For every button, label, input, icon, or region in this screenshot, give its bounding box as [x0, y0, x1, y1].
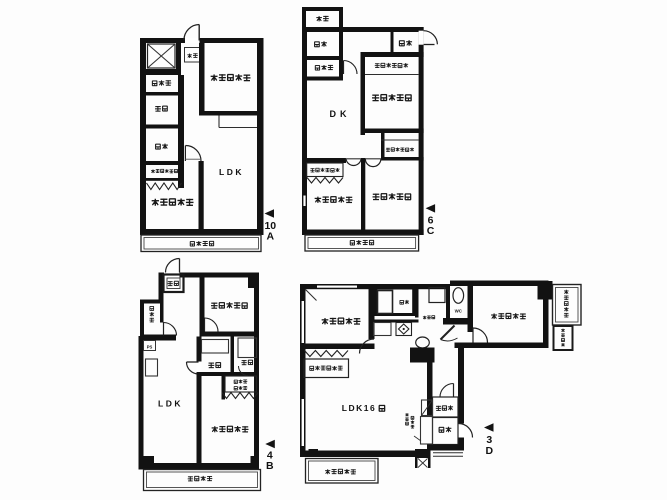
svg-text:LDK16: LDK16	[342, 403, 376, 413]
svg-text:LDK: LDK	[219, 167, 244, 177]
svg-text:DK: DK	[330, 109, 351, 119]
svg-text:PS: PS	[147, 344, 153, 349]
svg-text:LDK: LDK	[158, 399, 183, 409]
svg-text:B: B	[266, 460, 274, 472]
svg-text:D: D	[486, 445, 494, 457]
svg-text:WC: WC	[455, 309, 463, 314]
svg-text:A: A	[267, 231, 275, 243]
svg-text:C: C	[427, 225, 435, 237]
